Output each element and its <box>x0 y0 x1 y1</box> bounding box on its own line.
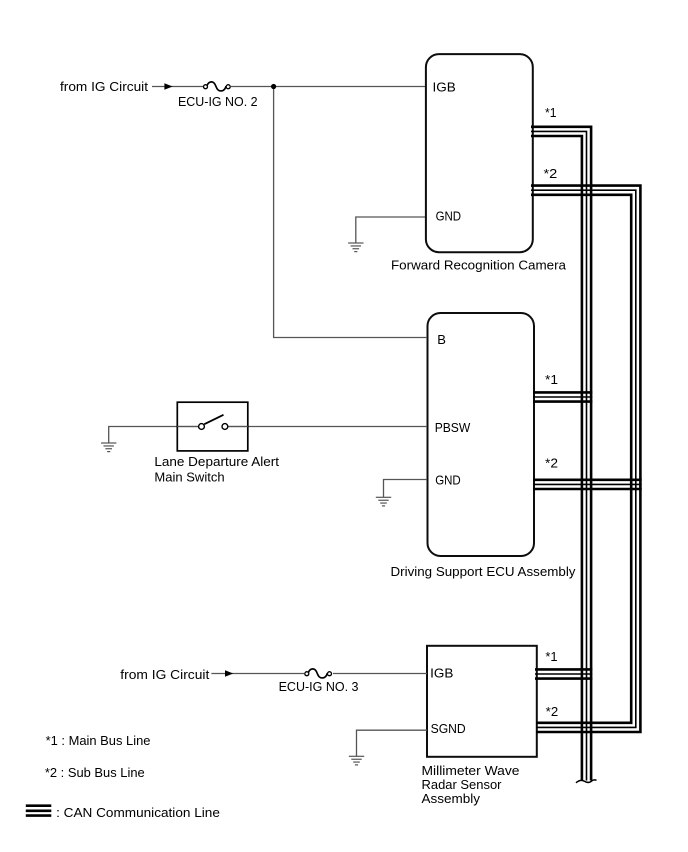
svg-text:Forward Recognition Camera: Forward Recognition Camera <box>391 258 567 273</box>
svg-text:from IG Circuit: from IG Circuit <box>60 79 148 94</box>
svg-text:Driving Support ECU Assembly: Driving Support ECU Assembly <box>391 564 577 579</box>
svg-text:*2 : Sub Bus Line: *2 : Sub Bus Line <box>45 765 145 780</box>
svg-text:ECU-IG NO. 2: ECU-IG NO. 2 <box>178 94 258 109</box>
svg-text:*1: *1 <box>545 372 558 387</box>
svg-text:GND: GND <box>436 209 462 224</box>
svg-text:*1 : Main Bus Line: *1 : Main Bus Line <box>46 733 151 748</box>
svg-text:*2: *2 <box>544 166 558 181</box>
svg-text:Assembly: Assembly <box>422 791 481 806</box>
svg-text:PBSW: PBSW <box>435 420 471 435</box>
svg-text:Radar Sensor: Radar Sensor <box>422 777 503 792</box>
svg-text:*1: *1 <box>545 105 557 120</box>
svg-text:IGB: IGB <box>433 80 456 95</box>
svg-text:ECU-IG NO. 3: ECU-IG NO. 3 <box>279 679 359 694</box>
svg-text:GND: GND <box>435 472 461 487</box>
svg-text:*2: *2 <box>546 704 559 719</box>
svg-text:IGB: IGB <box>430 665 453 680</box>
svg-text:*2: *2 <box>545 455 558 470</box>
svg-text:Main Switch: Main Switch <box>154 470 224 485</box>
svg-text:*1: *1 <box>545 649 557 664</box>
svg-text:SGND: SGND <box>431 721 466 736</box>
svg-text:Millimeter Wave: Millimeter Wave <box>422 763 520 778</box>
svg-text:B: B <box>437 332 446 347</box>
svg-text:: CAN Communication Line: : CAN Communication Line <box>56 805 220 820</box>
svg-text:from IG Circuit: from IG Circuit <box>120 667 209 682</box>
svg-text:Lane Departure Alert: Lane Departure Alert <box>154 454 279 469</box>
